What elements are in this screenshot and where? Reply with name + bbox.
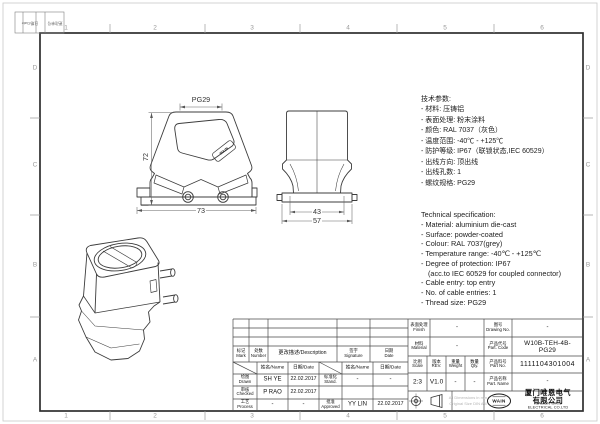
- tb-description-header: 更改描述/Description: [278, 351, 326, 357]
- front-view: [137, 112, 257, 205]
- zone-number-bottom: 3: [250, 412, 254, 419]
- spec-line: - Material: aluminium die-cast: [421, 220, 561, 230]
- zone-number-bottom: 5: [443, 412, 447, 419]
- tb-material-value: -: [456, 343, 458, 350]
- tb-approved-name: YY LIN: [348, 402, 367, 409]
- tb-mark-header: 标记 Mark: [236, 349, 246, 359]
- drawing-sheet: 1 2 3 4 5 6 1 2 3 4 5 6 D C B A D C B A …: [0, 0, 600, 424]
- spec-line: - 颜色: RAL 7037（灰色）: [421, 126, 549, 136]
- spec-line: - 材料: 压铸铝: [421, 105, 549, 115]
- tb-weight-value: -: [454, 378, 456, 385]
- tb-process-label: 工艺 Process: [237, 400, 253, 410]
- tb-part-code-value: W10B-TEH-4B-PG29: [521, 339, 574, 353]
- tb-qty-value: -: [473, 378, 475, 385]
- dim-side-inner-width: 43: [312, 208, 322, 216]
- tb-process-date: -: [303, 402, 305, 409]
- tb-checked-name: P RAO: [263, 389, 282, 396]
- tb-part-no-label: 产品料号 Part No.: [489, 360, 506, 370]
- zone-number-top: 6: [540, 24, 544, 31]
- spec-line: - Cable entry: top entry: [421, 278, 561, 288]
- spec-line: - Temperature range: -40℃ - +125℃: [421, 249, 561, 259]
- tech-specs-english: Technical specification: - Material: alu…: [421, 210, 561, 308]
- tb-scale-value: 2:3: [413, 378, 422, 385]
- tb-drawn-date: 22.02.2017: [291, 377, 317, 383]
- spec-line: - 螺纹规格: PG29: [421, 179, 549, 189]
- spec-line: 技术参数:: [421, 95, 549, 105]
- tb-part-name-value: -: [547, 379, 549, 386]
- isometric-view: [79, 238, 179, 360]
- tb-rev-value: V1.0: [430, 378, 443, 385]
- tech-specs-chinese: 技术参数: - 材料: 压铸铝 - 表面处理: 粉末涂料 - 颜色: RAL 7…: [421, 95, 549, 189]
- projection-symbol-icon: [409, 394, 442, 409]
- tb-date-subheader: 日期/Date: [293, 365, 314, 370]
- tb-material-label: 材料 Material: [411, 342, 426, 352]
- tb-checked-date: 22.02.2017: [291, 390, 317, 396]
- tb-finish-value: -: [456, 325, 458, 332]
- spec-line: Technical specification:: [421, 210, 561, 220]
- spec-line: - Colour: RAL 7037(grey): [421, 239, 561, 249]
- tb-stand-date: -: [390, 377, 392, 384]
- tb-drawn-name: SH YE: [264, 377, 282, 384]
- tb-signature-header: 签字 Signature: [344, 349, 362, 359]
- spec-line: - 出线孔数: 1: [421, 168, 549, 178]
- spec-line: (acc.to IEC 60529 for coupled connector): [421, 269, 561, 279]
- tb-finish-label: 表面处理 Finish: [410, 323, 427, 333]
- tb-checked-label: 审核 Checked: [237, 388, 254, 398]
- spec-line: - 温度范围: -40℃ - +125℃: [421, 137, 549, 147]
- tb-scale-label: 比例 Scale: [412, 360, 423, 370]
- zone-letter-left: A: [33, 356, 37, 363]
- tb-drawing-no-label: 图号 Drawing No.: [486, 323, 510, 333]
- dim-front-height: 72: [142, 152, 150, 162]
- spec-line: - 表面处理: 粉末涂料: [421, 116, 549, 126]
- zone-number-top: 1: [64, 24, 68, 31]
- tb-name-subheader: 姓名/Name: [261, 365, 285, 370]
- tb-dimensions-note: All Dimensions in mm Original Size DIN A…: [449, 395, 487, 407]
- zone-number-bottom: 2: [153, 412, 157, 419]
- tb-weight-label: 重量 Weight: [449, 360, 462, 370]
- zone-number-bottom: 4: [346, 412, 350, 419]
- spec-line: - 出线方向: 顶出线: [421, 158, 549, 168]
- zone-number-bottom: 1: [64, 412, 68, 419]
- tb-approved-label: 批准 Approved: [321, 400, 339, 410]
- zone-number-top: 3: [250, 24, 254, 31]
- zone-letter-left: B: [33, 261, 37, 268]
- tb-part-name-label: 产品名称 Part. Name: [487, 377, 509, 387]
- spec-line: - Surface: powder-coated: [421, 230, 561, 240]
- spec-line: - Degree of protection: IP67: [421, 259, 561, 269]
- tb-stand-name: -: [357, 377, 359, 384]
- tb-process-name: -: [272, 402, 274, 409]
- zone-number-top: 4: [346, 24, 350, 31]
- zone-number-top: 5: [443, 24, 447, 31]
- side-view: [277, 111, 357, 202]
- spec-line: - 防护等级: IP67（联锁状态,IEC 60529）: [421, 147, 549, 157]
- tb-date-header: 日期 Date: [384, 349, 393, 359]
- tb-drawn-label: 绘图 Drawn: [239, 375, 251, 385]
- dim-side-outer-width: 57: [312, 217, 322, 225]
- tb-stand-label: 标准化 Stand.: [324, 375, 337, 385]
- zone-letter-left: C: [33, 161, 38, 168]
- dim-thread-size: PG29: [191, 96, 211, 104]
- company-logo-text: WAIN: [492, 398, 505, 403]
- zone-letter-right: C: [586, 161, 591, 168]
- tb-date-subheader: 日期/Date: [380, 365, 401, 370]
- corner-change-no-label: 更改单号: [47, 20, 62, 24]
- spec-line: - Thread size: PG29: [421, 298, 561, 308]
- zone-letter-left: D: [33, 64, 38, 71]
- tb-qty-label: 数量 Qty.: [470, 360, 479, 370]
- dim-front-width: 73: [196, 206, 206, 214]
- tb-approved-date: 22.02.2017: [378, 402, 404, 408]
- zone-letter-right: B: [586, 261, 590, 268]
- tb-drawing-no-value: -: [547, 325, 549, 332]
- corner-date-label: 日期/Date: [21, 20, 38, 24]
- zone-number-top: 2: [153, 24, 157, 31]
- zone-letter-right: D: [586, 64, 591, 71]
- tb-name-subheader: 姓名/Name: [346, 365, 370, 370]
- tb-rev-label: 版本 REV.: [432, 360, 442, 370]
- zone-letter-right: A: [586, 356, 590, 363]
- zone-number-bottom: 6: [540, 412, 544, 419]
- tb-number-header: 处数 Number: [251, 349, 266, 359]
- spec-line: - No. of cable entries: 1: [421, 288, 561, 298]
- tb-part-code-label: 产品代号 Part. Code: [488, 342, 509, 352]
- tb-part-no-value: 1111104301004: [520, 361, 575, 369]
- company-name-en: XIAMEN WAIN ELECTRICAL CO.LTD: [522, 401, 574, 410]
